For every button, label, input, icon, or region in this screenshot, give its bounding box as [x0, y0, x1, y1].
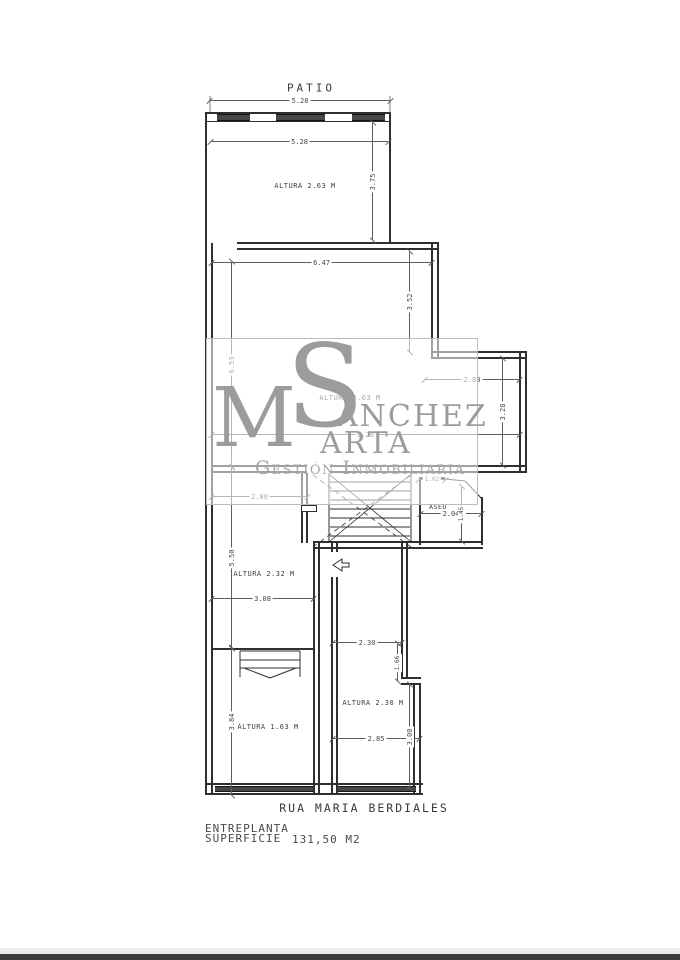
patio-label: PATIO: [287, 82, 335, 95]
dimension-value: 6.47: [311, 259, 332, 267]
dimension-value: 5.28: [289, 138, 310, 146]
street-label: RUA MARIA BERDIALES: [279, 801, 449, 815]
dimension-value: 3.52: [406, 292, 414, 313]
watermark-monogram-m: M: [212, 378, 296, 460]
room-label-left-mid: ALTURA 2.32 M: [233, 570, 294, 578]
dimension-value: 2.85: [366, 735, 387, 743]
dimension-mid-right-vertical: 3.52: [409, 252, 410, 352]
dimension-value: 3.00: [406, 726, 414, 747]
watermark-name-line2: ARTA: [320, 429, 412, 459]
project-surface-label: SUPERFICIE: [205, 834, 281, 844]
room-label-left-bottom: ALTURA 1.63 M: [237, 723, 298, 731]
dimension-value: 5.28: [290, 97, 311, 105]
footer-bar-dark: [0, 954, 680, 960]
dimension-left-lower: 3.84: [231, 648, 232, 795]
room-label-right-bottom: ALTURA 2.30 M: [342, 699, 403, 707]
dimension-value: 2.30: [357, 639, 378, 647]
dimension-right-vertical: 3.00: [409, 685, 410, 788]
dimension-top-right-vertical: 3.75: [372, 123, 373, 240]
dimension-aseo-width: 2.04: [421, 513, 481, 514]
dimension-value: 5.50: [228, 547, 236, 568]
dimension-value: 3.75: [369, 171, 377, 192]
door-arrow-icon: [333, 559, 349, 571]
dimension-leftroom-width: 3.08: [212, 598, 313, 599]
dimension-rightroom-width: 2.30: [333, 642, 401, 643]
dimension-value: 1.45: [458, 505, 466, 523]
project-area-value: 131,50 M2: [292, 835, 361, 845]
dimension-value: 3.84: [228, 711, 236, 732]
room-label-top: ALTURA 2.63 M: [274, 182, 335, 190]
dimension-value: 3.28: [499, 402, 507, 423]
dimension-mid-width: 6.47: [212, 262, 431, 263]
dimension-value: 3.08: [252, 595, 273, 603]
dimension-right-step-vertical: 1.66: [397, 644, 398, 681]
dimension-bumpout-vertical: 3.28: [502, 359, 503, 465]
watermark-tagline: Gestión Inmobiliaria: [255, 458, 465, 478]
dimension-top-inner: 5.28: [211, 141, 388, 142]
dimension-top-outer: 5.28: [210, 100, 390, 101]
dimension-value: 1.66: [394, 653, 402, 671]
floor-plan-page: 5.28 5.28 3.75 6.47 3.52 6.53 5.50 3.84 …: [0, 0, 680, 960]
